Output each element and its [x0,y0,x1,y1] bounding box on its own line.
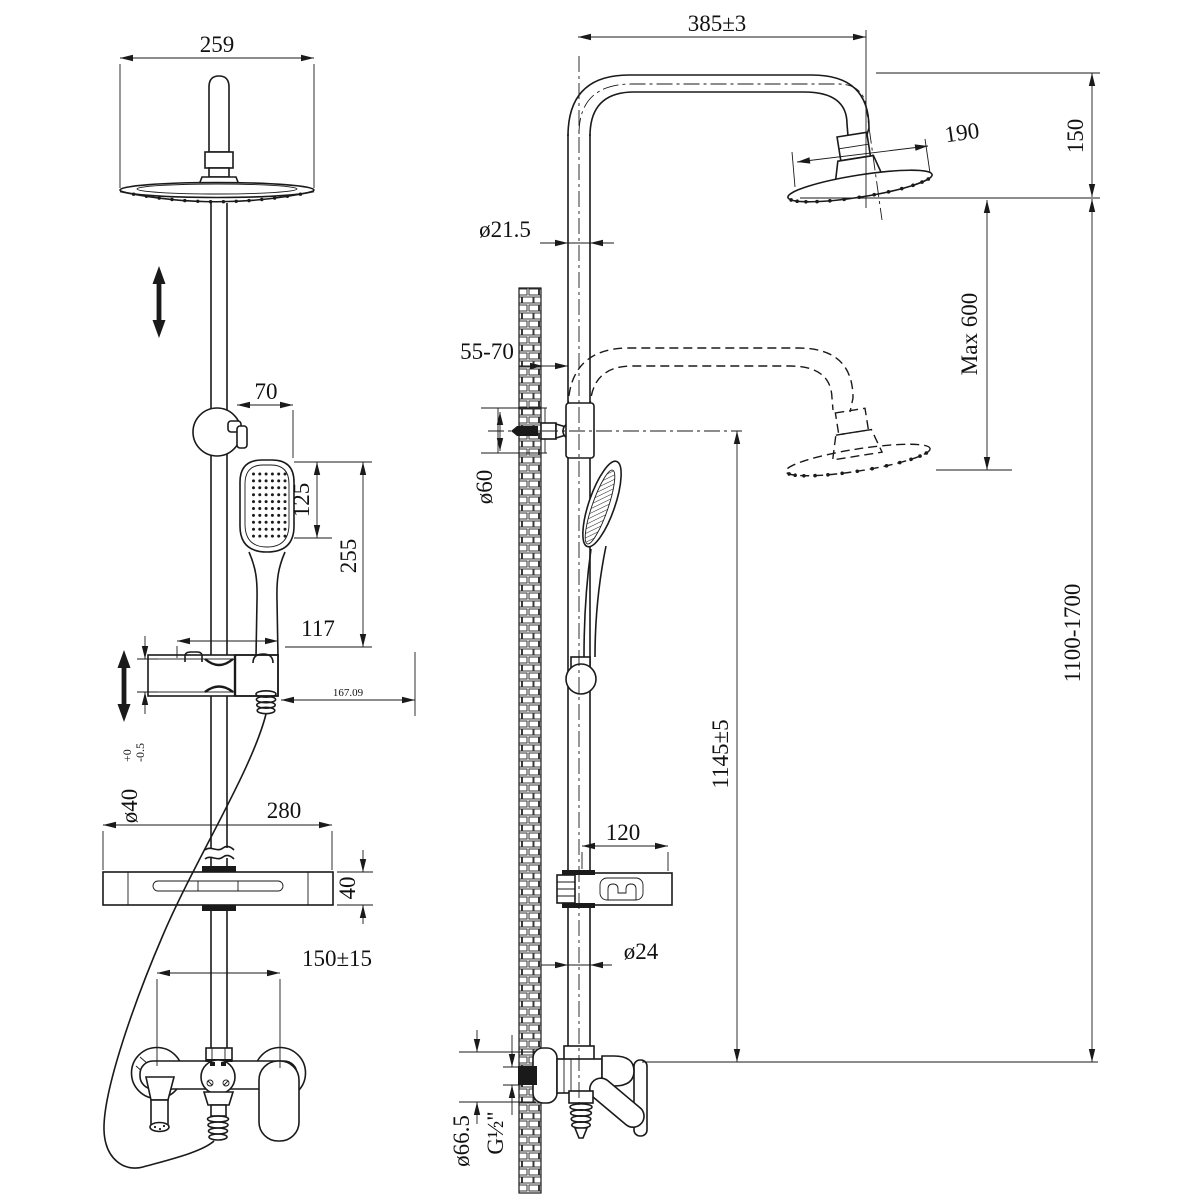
handshower-holder-front [193,408,247,456]
shower-system-drawing: 259 70 125 255 117 167.09 [0,0,1200,1200]
spout-front [146,1077,174,1132]
mixer-handle-front [259,1061,299,1141]
dim-bracket-diameter-label: ø60 [472,470,497,505]
wall-inlet-square [518,1066,537,1085]
mixer-front [132,1048,306,1142]
dim-riser-tol-upper: +0 [120,749,134,762]
dim-total-height: 1100-1700 [642,199,1098,1062]
front-view [103,76,333,1168]
dim-shelf-height-label: 40 [335,877,360,900]
dim-pipe-diameter-label: ø21.5 [479,217,531,242]
pipe-break-symbol [205,847,234,859]
dim-head-diameter-label: 190 [943,118,981,148]
dim-thread-size-label: G½" [483,1111,508,1154]
shower-hose [104,714,266,1168]
dim-shelf-width-label: 280 [267,798,302,823]
dim-slider-width-label: 117 [301,616,335,641]
dim-riser-diameter: ø40 +0 -0.5 [117,743,147,823]
diverter-front [201,1060,235,1094]
hand-shower-front [240,460,294,657]
dim-wall-clearance-label: 55-70 [460,339,514,364]
rain-shower-head-front [120,76,314,203]
center-lines [488,56,882,1106]
dim-inlet-spacing: 150±15 [157,946,372,1068]
dim-handshower-height-label: 1145±5 [708,719,733,788]
riser-pipe-front [205,203,234,1048]
dim-handshower-face: 125 [289,462,372,538]
dim-max-adjust-label: Max 600 [957,293,982,375]
dim-pipe-diameter: ø21.5 [479,217,614,246]
dim-thread-size: G½" [483,1035,523,1155]
dim-hook-width-label: 120 [606,820,641,845]
dim-head-drop-label: 150 [1063,119,1088,154]
dim-inlet-spacing-label: 150±15 [302,946,372,971]
dim-holder-offset-label: 70 [255,379,278,404]
slider-knob-side [566,664,596,694]
dim-wall-clearance: 55-70 [460,339,568,369]
adjust-arrow-lower [118,650,131,722]
dim-lower-pipe-diameter-label: ø24 [624,939,659,964]
dim-riser-diameter-label: ø40 [117,789,142,824]
dim-head-width-label: 259 [200,32,235,57]
hose-outlet-spring [208,1116,229,1140]
dim-max-adjust: Max 600 [936,200,1012,470]
dim-slider-depth-label: 167.09 [333,687,364,699]
technical-drawing-page: 259 70 125 255 117 167.09 [0,0,1200,1200]
wall-bracket-side [498,403,594,458]
hand-shower-side [566,457,629,694]
dim-slider-depth: 167.09 [281,652,415,716]
dim-handshower-length-label: 255 [336,539,361,574]
dim-hook-width: 120 [582,820,668,871]
dim-arm-length-label: 385±3 [688,11,747,36]
adjust-arrow-upper [153,266,166,338]
dim-shelf-height: 40 [335,850,373,924]
soap-shelf-front [103,866,333,911]
dim-arm-length: 385±3 [578,11,866,208]
shower-arm-lower-position [568,348,932,484]
outlet-spring-side [570,1104,592,1138]
slider-assembly-front [148,652,278,714]
dim-total-height-label: 1100-1700 [1060,584,1085,683]
rain-head-upper-side [780,123,934,210]
dim-riser-tol-lower: -0.5 [133,743,147,762]
side-view [488,56,934,1193]
dim-lower-pipe-diameter: ø24 [541,939,659,968]
dim-handshower-height: 1145±5 [708,431,740,1062]
dim-escutcheon-diameter-label: ø66.5 [449,1115,474,1167]
hook-bracket-side [557,870,672,908]
dim-handshower-face-label: 125 [289,483,314,518]
